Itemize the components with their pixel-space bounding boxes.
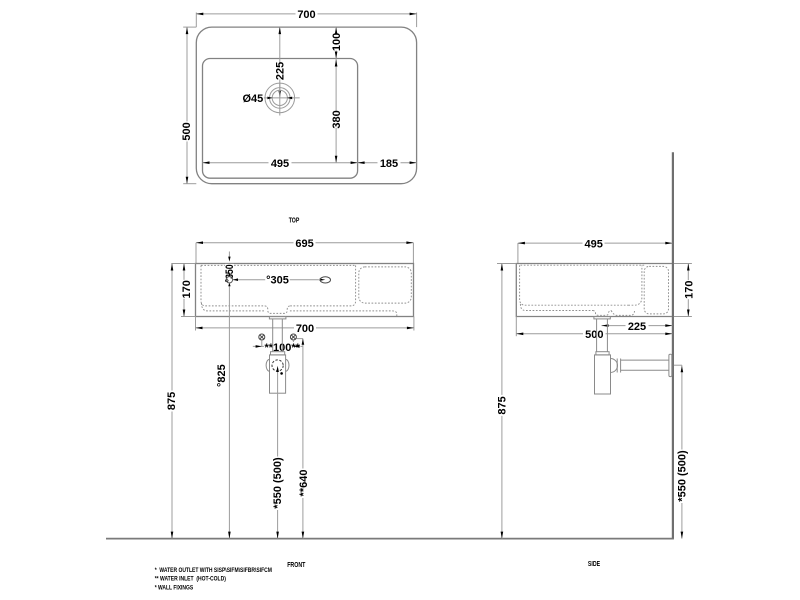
svg-text:495: 495 bbox=[585, 238, 603, 250]
svg-text:170: 170 bbox=[181, 280, 193, 298]
svg-text:380: 380 bbox=[331, 110, 343, 128]
svg-text:*550 (500): *550 (500) bbox=[677, 450, 689, 502]
svg-text:875: 875 bbox=[496, 396, 508, 414]
svg-text:** WATER INLET (HOT-COLD): ** WATER INLET (HOT-COLD) bbox=[155, 576, 226, 583]
svg-text:700: 700 bbox=[296, 323, 314, 335]
svg-text:SIDE: SIDE bbox=[588, 561, 600, 568]
svg-text:°305: °305 bbox=[266, 274, 289, 286]
svg-text:185: 185 bbox=[380, 158, 398, 170]
svg-text:500: 500 bbox=[585, 329, 603, 341]
svg-text:**640: **640 bbox=[298, 470, 310, 497]
svg-text:TOP: TOP bbox=[289, 218, 300, 225]
svg-text:170: 170 bbox=[684, 281, 696, 299]
svg-text:500: 500 bbox=[181, 122, 193, 140]
svg-text:100: 100 bbox=[331, 33, 343, 51]
svg-text:700: 700 bbox=[297, 9, 315, 21]
svg-text:875: 875 bbox=[166, 392, 178, 410]
svg-text:Ø45: Ø45 bbox=[243, 93, 264, 105]
svg-text:495: 495 bbox=[271, 158, 289, 170]
svg-text:FRONT: FRONT bbox=[287, 562, 306, 569]
svg-text:°825: °825 bbox=[216, 364, 228, 387]
svg-text:695: 695 bbox=[295, 238, 313, 250]
svg-text:225: 225 bbox=[628, 321, 646, 333]
svg-text:* WATER OUTLET WITH SISP\SIFM: * WATER OUTLET WITH SISP\SIFM\SIFBR\SIFC… bbox=[155, 567, 272, 574]
svg-text:225: 225 bbox=[275, 62, 287, 80]
svg-text:*550 (500): *550 (500) bbox=[272, 457, 284, 509]
svg-text:* WALL FIXINGS: * WALL FIXINGS bbox=[155, 585, 194, 592]
